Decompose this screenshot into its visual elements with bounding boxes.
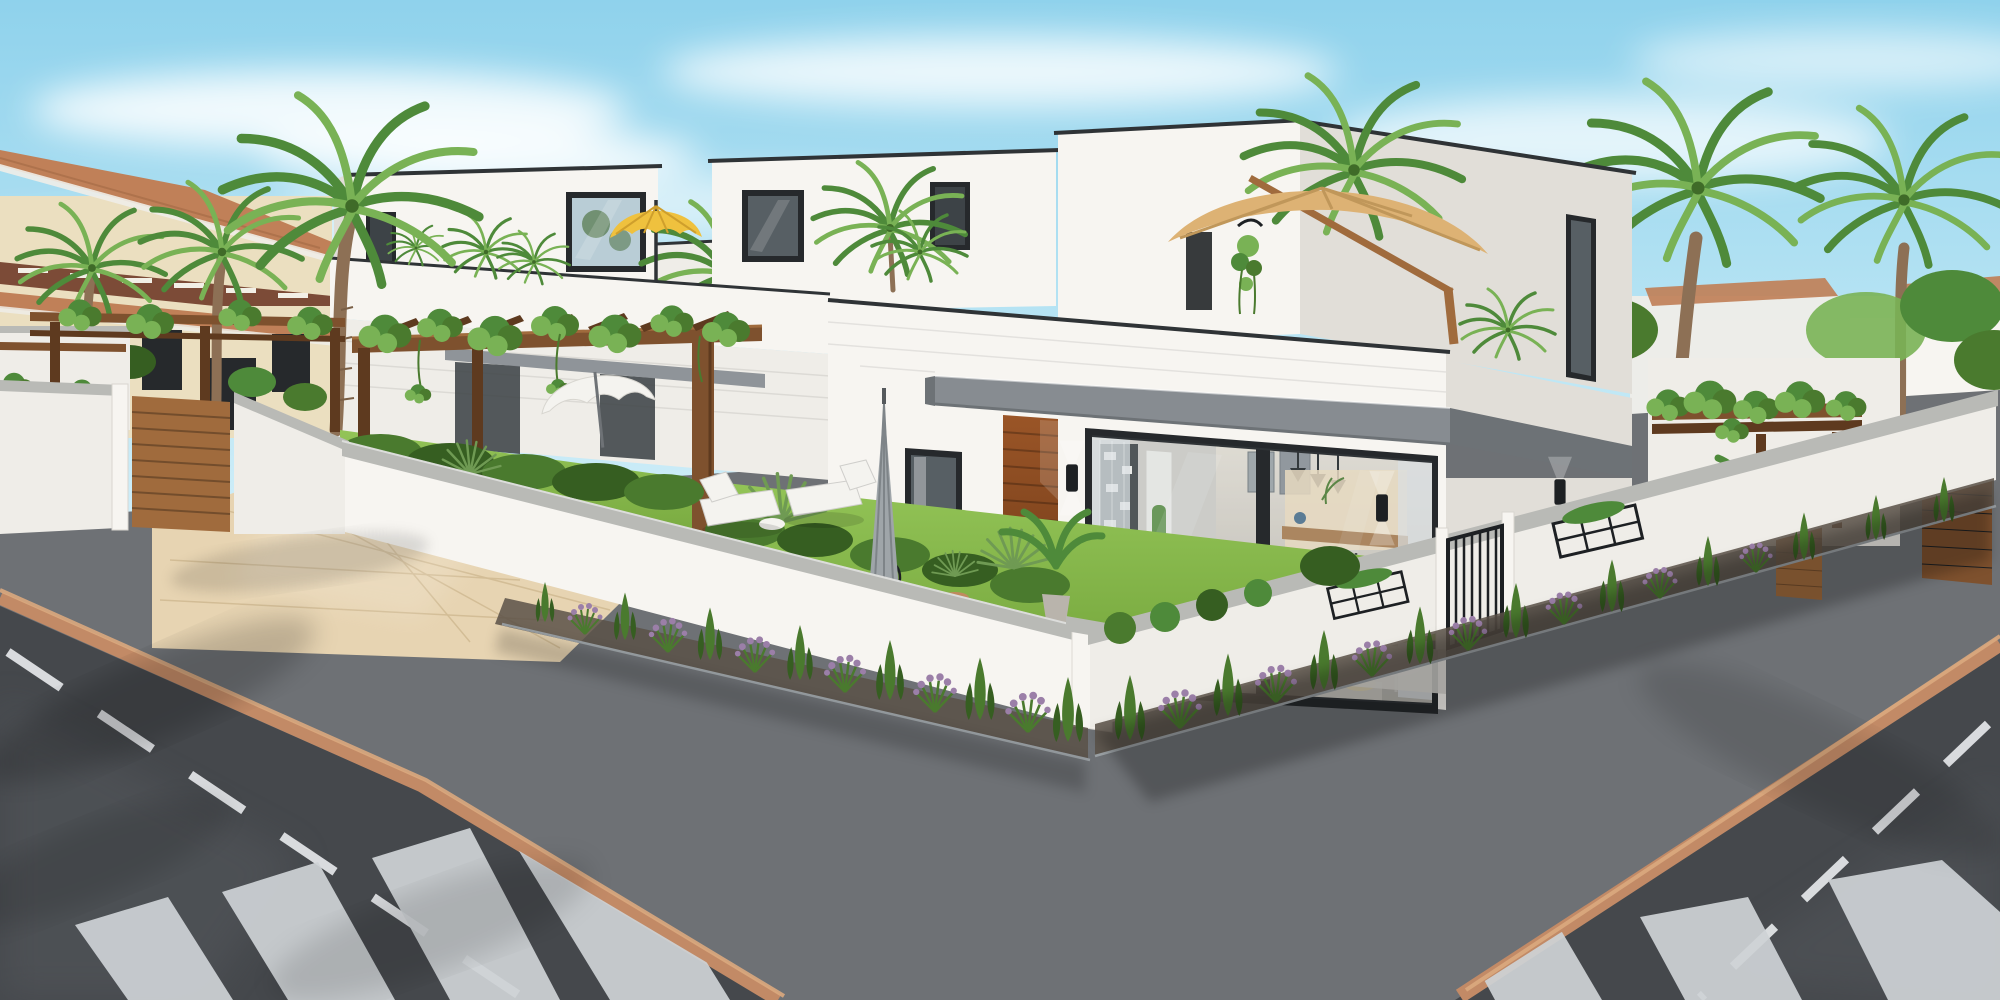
parasol-pole (1448, 288, 1454, 344)
cloud (660, 36, 1340, 108)
scene-canvas (0, 0, 2000, 1000)
wall-pillar (112, 384, 128, 530)
wooden-gate-left (132, 396, 230, 532)
architectural-render (0, 0, 2000, 1000)
ground-glass-door (455, 362, 520, 454)
left-wall (0, 388, 118, 534)
canopy-end (925, 376, 935, 406)
roof-access-opening (1186, 232, 1212, 310)
